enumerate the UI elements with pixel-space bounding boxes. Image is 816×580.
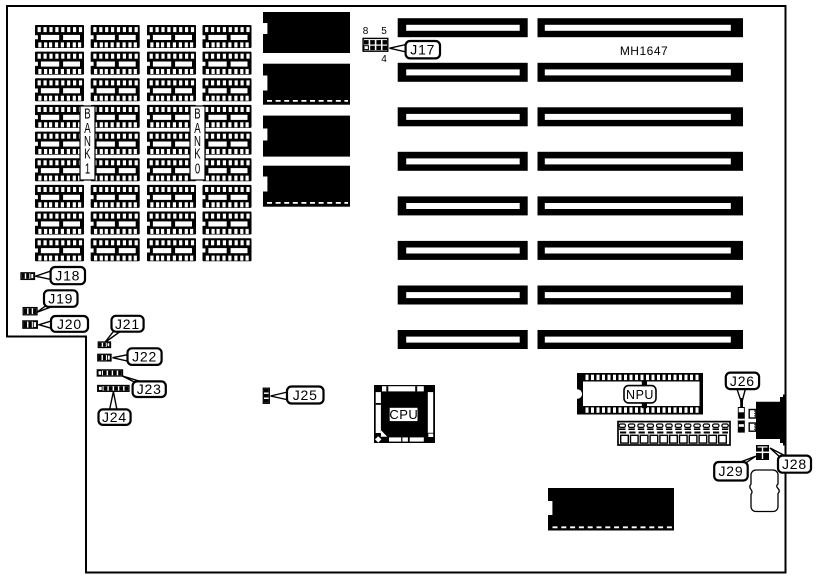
svg-text:NPU: NPU [626,388,654,402]
svg-text:J26: J26 [730,373,755,389]
svg-text:1: 1 [85,161,90,178]
svg-text:J28: J28 [782,456,807,472]
svg-text:J21: J21 [115,316,140,332]
svg-text:J22: J22 [132,349,157,365]
svg-text:J19: J19 [48,291,73,307]
svg-text:5: 5 [381,26,387,37]
svg-text:J29: J29 [719,463,744,479]
svg-text:J23: J23 [137,381,162,397]
svg-text:8: 8 [363,26,369,37]
svg-text:J24: J24 [102,409,127,425]
svg-text:4: 4 [381,54,387,65]
svg-text:J18: J18 [55,268,80,284]
svg-text:J20: J20 [57,316,82,332]
svg-text:MH1647: MH1647 [620,44,668,58]
svg-text:J17: J17 [410,42,435,58]
svg-text:CPU: CPU [389,407,418,422]
svg-text:J25: J25 [293,387,318,403]
svg-text:0: 0 [195,161,200,178]
